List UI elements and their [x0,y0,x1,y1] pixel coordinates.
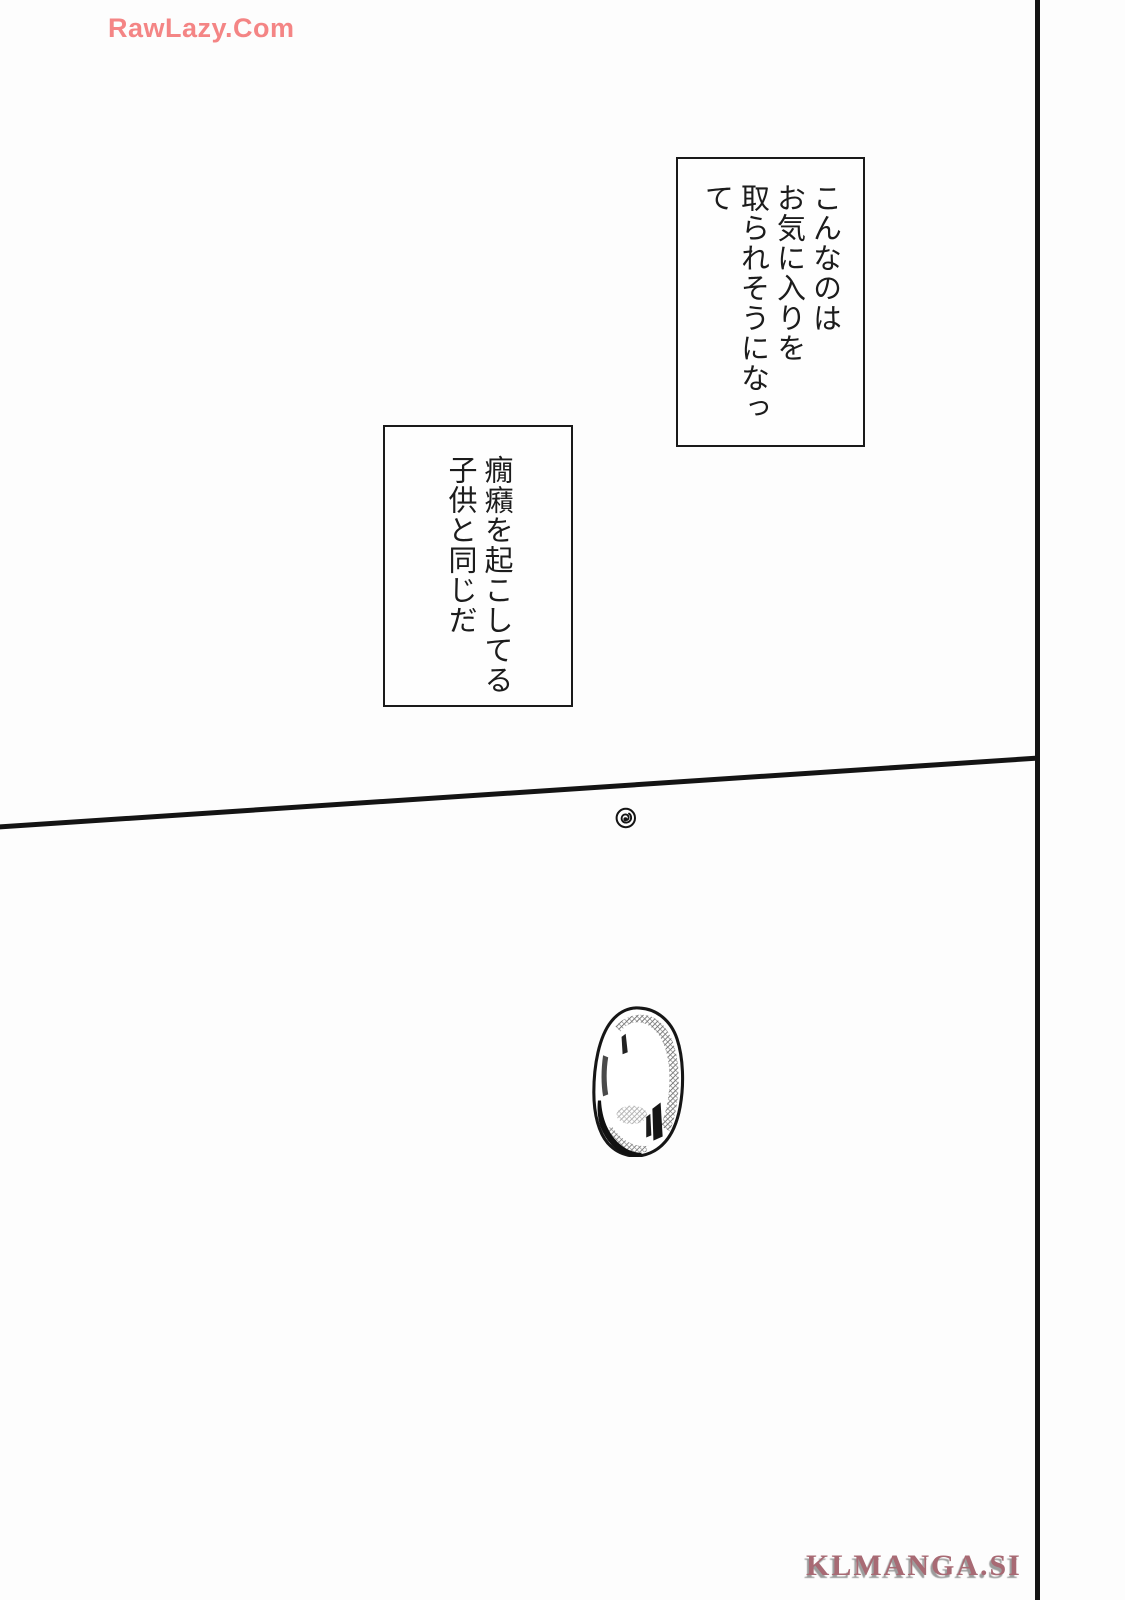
watermark-klmanga: KLMANGA.SI [806,1549,1022,1583]
speech-line: こんなのは [807,183,843,445]
speech-line: 子供と同じだ [442,455,478,695]
manga-page: RawLazy.Com こんなのは お気に入りを 取られそうになって 癇癪を起こ… [0,0,1125,1600]
speech-line: 取られそうになって [699,183,771,445]
speech-text-1: こんなのは お気に入りを 取られそうになって [699,183,843,445]
swirl-icon [614,806,638,830]
panel-border-vertical [1035,0,1040,1600]
panel-border-diagonal [0,0,1125,1600]
egg-object-illustration [590,1006,686,1157]
speech-line: 癇癪を起こしてる [478,455,514,695]
speech-box-1: こんなのは お気に入りを 取られそうになって [676,157,865,447]
watermark-rawlazy: RawLazy.Com [108,13,295,44]
speech-text-2: 癇癪を起こしてる 子供と同じだ [442,455,514,695]
speech-box-2: 癇癪を起こしてる 子供と同じだ [383,425,573,707]
speech-line: お気に入りを [771,183,807,445]
